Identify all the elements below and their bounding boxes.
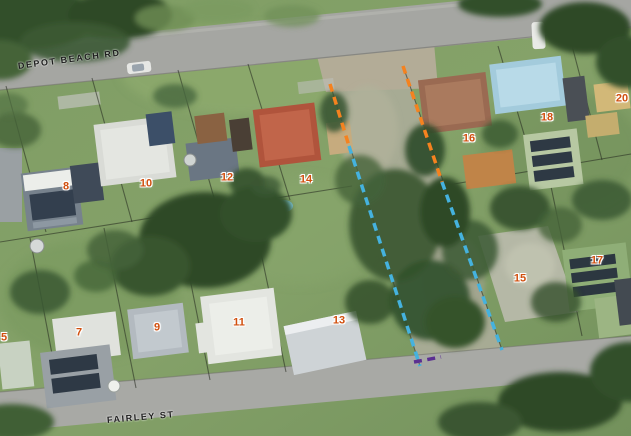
aerial-map[interactable]: DEPOT BEACH RDFAIRLEY ST8101214161820579… — [0, 0, 631, 436]
aerial-photo — [0, 0, 631, 436]
building-lot-9 — [127, 303, 189, 359]
building-lot-5 — [0, 340, 34, 389]
